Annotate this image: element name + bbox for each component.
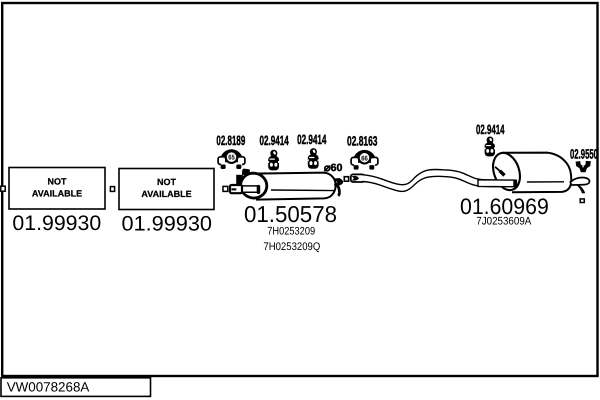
svg-text:02.9550: 02.9550 (570, 146, 598, 161)
svg-text:VW0078268A: VW0078268A (7, 380, 90, 395)
svg-text:01.99930: 01.99930 (122, 213, 213, 236)
svg-text:02.9414: 02.9414 (297, 132, 327, 147)
svg-text:02.8163: 02.8163 (347, 134, 378, 149)
svg-text:AVAILABLE: AVAILABLE (141, 189, 191, 199)
svg-text:02.8189: 02.8189 (216, 133, 245, 148)
svg-text:7H0253209: 7H0253209 (267, 226, 315, 238)
svg-text:AVAILABLE: AVAILABLE (32, 189, 82, 199)
svg-text:7J0253609A: 7J0253609A (476, 215, 532, 227)
svg-text:01.99930: 01.99930 (12, 212, 101, 235)
svg-text:7H0253209Q: 7H0253209Q (263, 241, 320, 253)
svg-text:NOT: NOT (157, 177, 177, 187)
svg-text:66: 66 (361, 155, 368, 162)
svg-text:65: 65 (228, 155, 235, 162)
svg-text:01.50578: 01.50578 (244, 201, 337, 227)
svg-text:02.9414: 02.9414 (260, 133, 289, 148)
svg-text:02.9414: 02.9414 (476, 122, 505, 137)
svg-text:NOT: NOT (48, 177, 68, 187)
